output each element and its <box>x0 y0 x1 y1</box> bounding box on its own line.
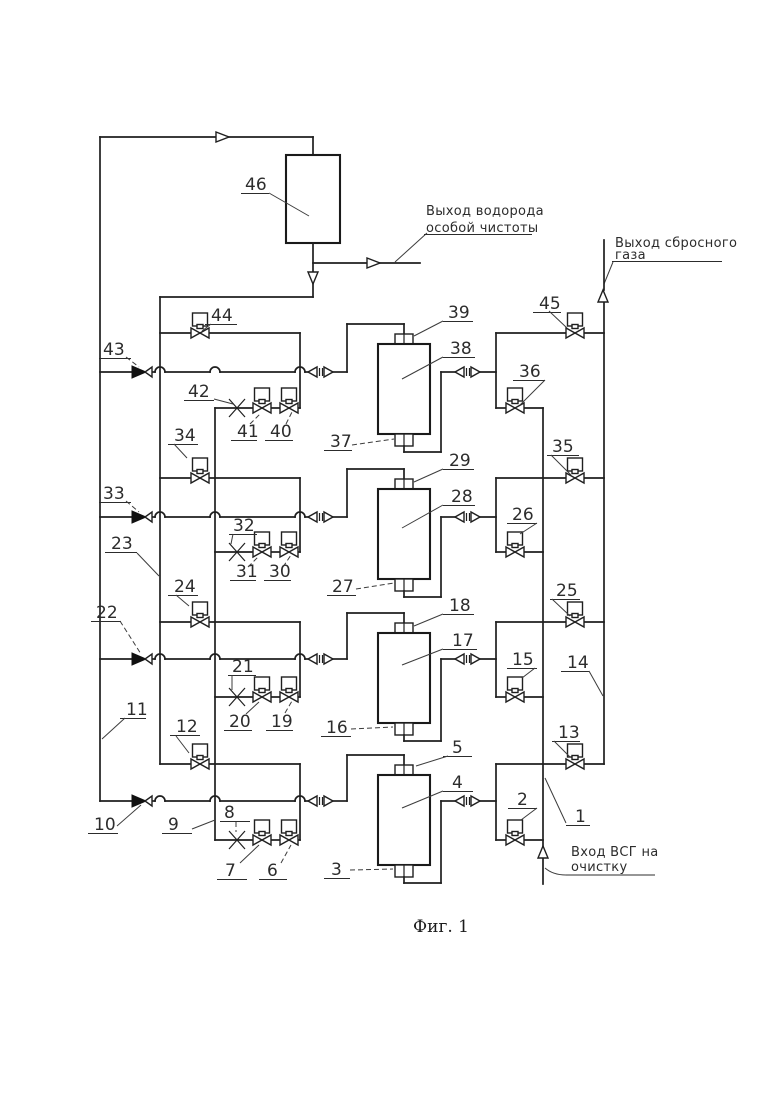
callout-16-leader <box>351 727 393 729</box>
valve-25 <box>575 617 584 627</box>
purge-outlet-label-line2: газа <box>615 248 646 263</box>
callout-33-leader <box>126 501 139 512</box>
callout-40: 40 <box>270 422 292 442</box>
callout-41: 41 <box>237 422 259 442</box>
callout-22: 22 <box>96 603 118 623</box>
callout-45: 45 <box>539 294 561 314</box>
fitting <box>471 654 480 664</box>
callout-30: 30 <box>269 562 291 582</box>
valve-36 <box>515 403 524 413</box>
fitting <box>324 654 333 664</box>
callout-1-leader <box>545 778 566 823</box>
check-valve-22 <box>145 654 152 664</box>
valve-7-stem <box>259 832 265 836</box>
callout-37-leader <box>352 439 394 445</box>
fitting <box>455 654 464 664</box>
valve-45-stem <box>572 325 578 329</box>
valve-6 <box>289 835 298 845</box>
fitting <box>455 796 464 806</box>
valve-34-stem <box>197 470 203 474</box>
valve-30-stem <box>286 544 292 548</box>
pipe-crossing-hop <box>210 367 220 372</box>
callout-36-leader <box>520 380 545 405</box>
callout-10: 10 <box>94 815 116 835</box>
callout-36: 36 <box>519 362 541 382</box>
valve-24 <box>200 617 209 627</box>
purge-outlet-leader <box>604 262 613 284</box>
fitting <box>308 654 317 664</box>
callout-11: 11 <box>126 700 148 720</box>
callout-46: 46 <box>245 175 267 195</box>
figure-caption: Фиг. 1 <box>413 917 469 937</box>
callout-18-leader <box>414 614 443 626</box>
callout-32-leader <box>231 534 233 544</box>
valve-41 <box>262 403 271 413</box>
valve-40-stem <box>286 400 292 404</box>
callout-25: 25 <box>556 581 578 601</box>
valve-13 <box>575 759 584 769</box>
flow-arrow-right-icon <box>216 132 229 142</box>
valve-15-stem <box>512 689 518 693</box>
callout-31: 31 <box>236 562 258 582</box>
callout-14: 14 <box>567 653 589 673</box>
callout-29: 29 <box>449 451 471 471</box>
fitting <box>324 512 333 522</box>
fitting <box>471 367 480 377</box>
fitting <box>471 796 480 806</box>
process-flow-diagram: Выход водорода особой чистоты Выход сбро… <box>0 0 780 1103</box>
callout-32: 32 <box>233 516 255 536</box>
adsorber-vessel-38 <box>378 344 430 434</box>
valve-30 <box>289 547 298 557</box>
callout-10-leader <box>117 805 141 826</box>
valve-26-stem <box>512 544 518 548</box>
feed-inlet-label-line1: Вход ВСГ на <box>571 845 659 860</box>
callout-4: 4 <box>452 773 463 793</box>
callout-27: 27 <box>332 577 354 597</box>
fitting <box>455 367 464 377</box>
valve-41-stem <box>259 400 265 404</box>
valve-12 <box>200 759 209 769</box>
callout-29-leader <box>414 469 443 482</box>
valve-36-stem <box>512 400 518 404</box>
fitting <box>308 512 317 522</box>
callout-7: 7 <box>225 861 236 881</box>
callout-14-leader <box>589 671 603 696</box>
callout-28: 28 <box>451 487 473 507</box>
fitting <box>471 512 480 522</box>
callout-20-leader <box>246 702 259 714</box>
callout-5: 5 <box>452 738 463 758</box>
callout-43-leader <box>126 357 139 367</box>
hydrogen-outlet-label-line2: особой чистоты <box>426 221 538 236</box>
receiver-vessel-46 <box>286 155 340 243</box>
callout-23: 23 <box>111 534 133 554</box>
callout-38: 38 <box>450 339 472 359</box>
check-valve-33 <box>145 512 152 522</box>
callout-33: 33 <box>103 484 125 504</box>
fitting <box>455 512 464 522</box>
valve-26 <box>515 547 524 557</box>
pipe-crossing-hop <box>155 796 165 801</box>
callout-24: 24 <box>174 577 196 597</box>
hydrogen-outlet-leader <box>395 233 427 262</box>
callout-20: 20 <box>229 712 251 732</box>
callout-26: 26 <box>512 505 534 525</box>
callout-34: 34 <box>174 426 196 446</box>
callout-19: 19 <box>271 712 293 732</box>
feed-inlet-label-line2: очистку <box>571 860 627 875</box>
fitting <box>308 367 317 377</box>
valve-44-stem <box>197 325 203 329</box>
callout-6-leader <box>281 845 291 863</box>
callout-43: 43 <box>103 340 125 360</box>
valve-40 <box>289 403 298 413</box>
callout-16: 16 <box>326 718 348 738</box>
callout-17: 17 <box>452 631 474 651</box>
fitting <box>308 796 317 806</box>
valve-20-stem <box>259 689 265 693</box>
valve-20 <box>262 692 271 702</box>
callout-44: 44 <box>211 306 233 326</box>
adsorber-vessel-17 <box>378 633 430 723</box>
callout-18: 18 <box>449 596 471 616</box>
valve-19-stem <box>286 689 292 693</box>
valve-12-stem <box>197 756 203 760</box>
valve-35 <box>575 473 584 483</box>
callout-22-leader <box>120 621 141 654</box>
callout-15: 15 <box>512 650 534 670</box>
valve-31 <box>262 547 271 557</box>
callout-12-leader <box>176 736 189 753</box>
patent-figure-page: Выход водорода особой чистоты Выход сбро… <box>0 0 780 1103</box>
flow-arrow-right-icon <box>367 258 380 268</box>
valve-7 <box>262 835 271 845</box>
valve-15 <box>515 692 524 702</box>
valve-2 <box>515 835 524 845</box>
fitting <box>324 796 333 806</box>
callout-9-leader <box>192 820 215 829</box>
callout-35: 35 <box>552 437 574 457</box>
feed-inlet-leader <box>545 868 566 875</box>
callout-12: 12 <box>176 717 198 737</box>
valve-34 <box>200 473 209 483</box>
callout-7-leader <box>240 845 259 863</box>
callout-1: 1 <box>575 807 586 827</box>
valve-24-stem <box>197 614 203 618</box>
callout-9: 9 <box>168 815 179 835</box>
check-valve-10 <box>145 796 152 806</box>
callout-23-leader <box>137 553 159 576</box>
callout-34-leader <box>174 444 187 458</box>
callout-13: 13 <box>558 723 580 743</box>
fitting <box>324 367 333 377</box>
callout-8: 8 <box>224 803 235 823</box>
hydrogen-outlet-label-line1: Выход водорода <box>426 204 544 219</box>
callout-5-leader <box>416 756 448 766</box>
callout-3-leader <box>350 869 393 870</box>
valve-31-stem <box>259 544 265 548</box>
valve-45 <box>575 328 584 338</box>
callout-37: 37 <box>330 432 352 452</box>
adsorber-vessel-4 <box>378 775 430 865</box>
callout-42: 42 <box>188 382 210 402</box>
check-valve-43 <box>145 367 152 377</box>
callout-21: 21 <box>232 657 254 677</box>
valve-6-stem <box>286 832 292 836</box>
adsorber-vessel-28 <box>378 489 430 579</box>
flow-arrow-up-icon <box>538 846 548 858</box>
callout-39-leader <box>414 321 443 336</box>
flow-arrow-up-icon <box>598 290 608 302</box>
callout-11-leader <box>102 718 125 739</box>
callout-27-leader <box>356 583 394 589</box>
callout-3: 3 <box>331 860 342 880</box>
valve-35-stem <box>572 470 578 474</box>
valve-2-stem <box>512 832 518 836</box>
callout-6: 6 <box>267 861 278 881</box>
valve-13-stem <box>572 756 578 760</box>
flow-arrow-down-icon <box>308 272 318 284</box>
callout-2: 2 <box>517 790 528 810</box>
valve-19 <box>289 692 298 702</box>
callout-39: 39 <box>448 303 470 323</box>
valve-25-stem <box>572 614 578 618</box>
